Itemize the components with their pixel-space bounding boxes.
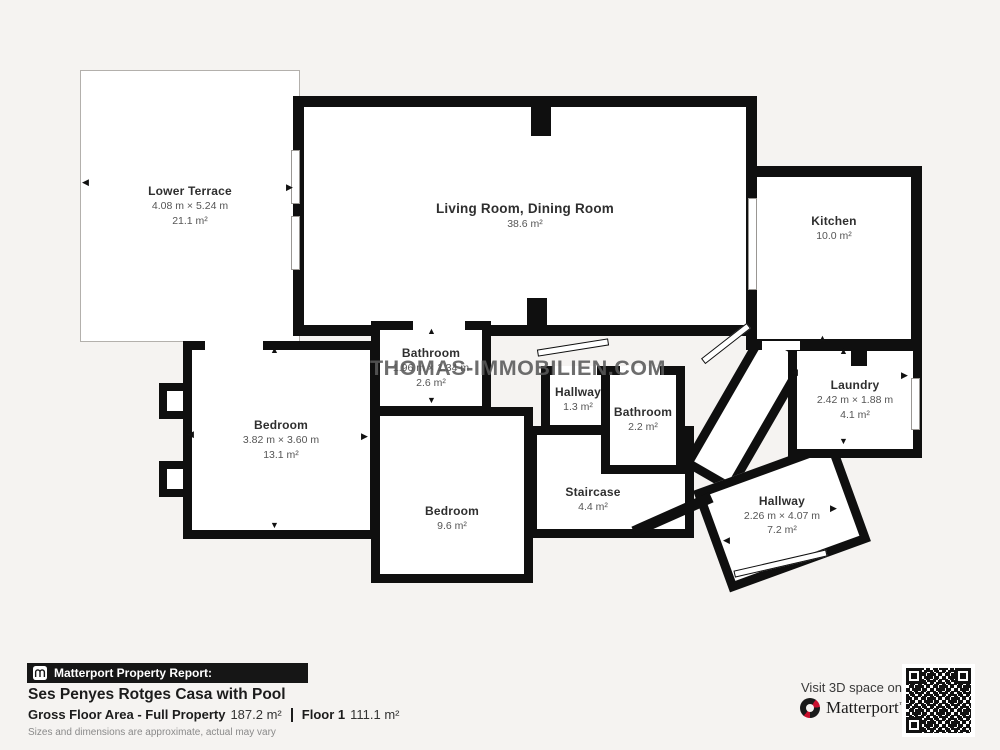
floor-area-line: Gross Floor Area - Full Property 187.2 m… (28, 707, 399, 722)
room-label: Bedroom 3.82 m × 3.60 m 13.1 m² (243, 418, 319, 461)
room-area: 7.2 m² (744, 525, 820, 538)
room-label: Lower Terrace 4.08 m × 5.24 m 21.1 m² (148, 184, 232, 227)
arrow-down-icon: ▼ (270, 521, 279, 530)
room-area: 1.3 m² (555, 401, 601, 414)
door-leaf (537, 338, 609, 356)
room-lower-terrace: Lower Terrace 4.08 m × 5.24 m 21.1 m² (80, 70, 300, 342)
door-opening (205, 341, 263, 350)
room-area: 4.4 m² (565, 501, 620, 514)
window (291, 216, 300, 270)
floor-label: Floor 1 (302, 707, 345, 722)
room-bedroom-mid: Bedroom 9.6 m² (371, 407, 533, 583)
matterport-wordmark: Matterport™ (826, 698, 906, 718)
room-name: Hallway (744, 494, 820, 509)
room-kitchen: Kitchen 10.0 m² (746, 166, 922, 350)
disclaimer-text: Sizes and dimensions are approximate, ac… (28, 727, 276, 738)
window (291, 150, 300, 204)
report-header-bar: Matterport Property Report: (27, 663, 308, 683)
room-area: 38.6 m² (436, 218, 614, 231)
matterport-brand: Matterport™ (800, 698, 906, 718)
room-area: 2.2 m² (614, 421, 672, 434)
qr-code-icon (902, 664, 975, 737)
arrow-left-icon: ◀ (791, 368, 798, 377)
arrow-up-icon: ▲ (427, 327, 436, 336)
room-dimensions: 4.08 m × 5.24 m (148, 200, 232, 213)
room-label: Laundry 2.42 m × 1.88 m 4.1 m² (817, 378, 893, 421)
qr-finder-pattern (906, 717, 922, 733)
wall-stub (531, 96, 551, 136)
arrow-up-icon: ▲ (818, 334, 827, 343)
arrow-right-icon: ▶ (830, 504, 837, 513)
room-name: Living Room, Dining Room (436, 201, 614, 218)
arrow-down-icon: ▼ (839, 437, 848, 446)
matterport-logo-icon (800, 698, 820, 718)
room-area: 4.1 m² (817, 409, 893, 422)
room-name: Hallway (555, 385, 601, 400)
room-bathroom-small: Bathroom 2.2 m² (601, 366, 685, 474)
report-header-label: Matterport Property Report: (54, 666, 212, 680)
room-label: Hallway 2.26 m × 4.07 m 7.2 m² (744, 494, 820, 537)
room-area: 9.6 m² (425, 520, 479, 533)
arrow-up-icon: ▲ (839, 347, 848, 356)
arrow-up-icon: ▲ (270, 346, 279, 355)
room-label: Kitchen 10.0 m² (811, 214, 856, 301)
room-dimensions: 2.26 m × 4.07 m (744, 510, 820, 523)
room-area: 13.1 m² (243, 449, 319, 462)
arrow-left-icon: ◀ (187, 430, 194, 439)
arrow-right-icon: ▶ (286, 183, 293, 192)
qr-finder-pattern (955, 668, 971, 684)
arrow-right-icon: ▶ (901, 371, 908, 380)
room-area: 21.1 m² (148, 215, 232, 228)
door-opening (762, 341, 800, 350)
room-label: Bathroom 2.2 m² (614, 405, 672, 434)
brand-text: Matterport (826, 698, 899, 717)
property-title: Ses Penyes Rotges Casa with Pool (28, 686, 286, 704)
room-name: Laundry (817, 378, 893, 393)
wall-stub (851, 342, 867, 366)
room-name: Bathroom (614, 405, 672, 420)
visit-3d-text: Visit 3D space on (801, 680, 902, 695)
window (748, 198, 757, 290)
door-opening (413, 321, 465, 330)
matterport-m-icon (33, 666, 47, 680)
floor-value: 111.1 m² (350, 707, 399, 722)
room-name: Bedroom (243, 418, 319, 433)
room-name: Lower Terrace (148, 184, 232, 199)
room-label: Hallway 1.3 m² (555, 385, 601, 414)
floor-plan-page: Lower Terrace 4.08 m × 5.24 m 21.1 m² Ha… (0, 0, 1000, 750)
separator (291, 708, 293, 722)
wall-stub (527, 298, 547, 336)
room-name: Bedroom (425, 504, 479, 519)
watermark: THOMAS-IMMOBILIEN.COM (370, 356, 666, 381)
room-area: 10.0 m² (811, 230, 856, 243)
qr-finder-pattern (906, 668, 922, 684)
arrow-right-icon: ▶ (361, 432, 368, 441)
room-label: Bedroom 9.6 m² (425, 456, 479, 533)
room-dimensions: 3.82 m × 3.60 m (243, 434, 319, 447)
arrow-left-icon: ◀ (82, 178, 89, 187)
room-living-dining: Living Room, Dining Room 38.6 m² (293, 96, 757, 336)
room-dimensions: 2.42 m × 1.88 m (817, 394, 893, 407)
room-name: Staircase (565, 485, 620, 500)
room-label: Living Room, Dining Room 38.6 m² (436, 201, 614, 232)
arrow-left-icon: ◀ (723, 536, 730, 545)
room-name: Kitchen (811, 214, 856, 229)
window (911, 378, 920, 430)
room-bedroom-left: Bedroom 3.82 m × 3.60 m 13.1 m² (183, 341, 379, 539)
gross-area-value: 187.2 m² (230, 707, 281, 722)
gross-area-label: Gross Floor Area - Full Property (28, 707, 225, 722)
arrow-down-icon: ▼ (427, 396, 436, 405)
